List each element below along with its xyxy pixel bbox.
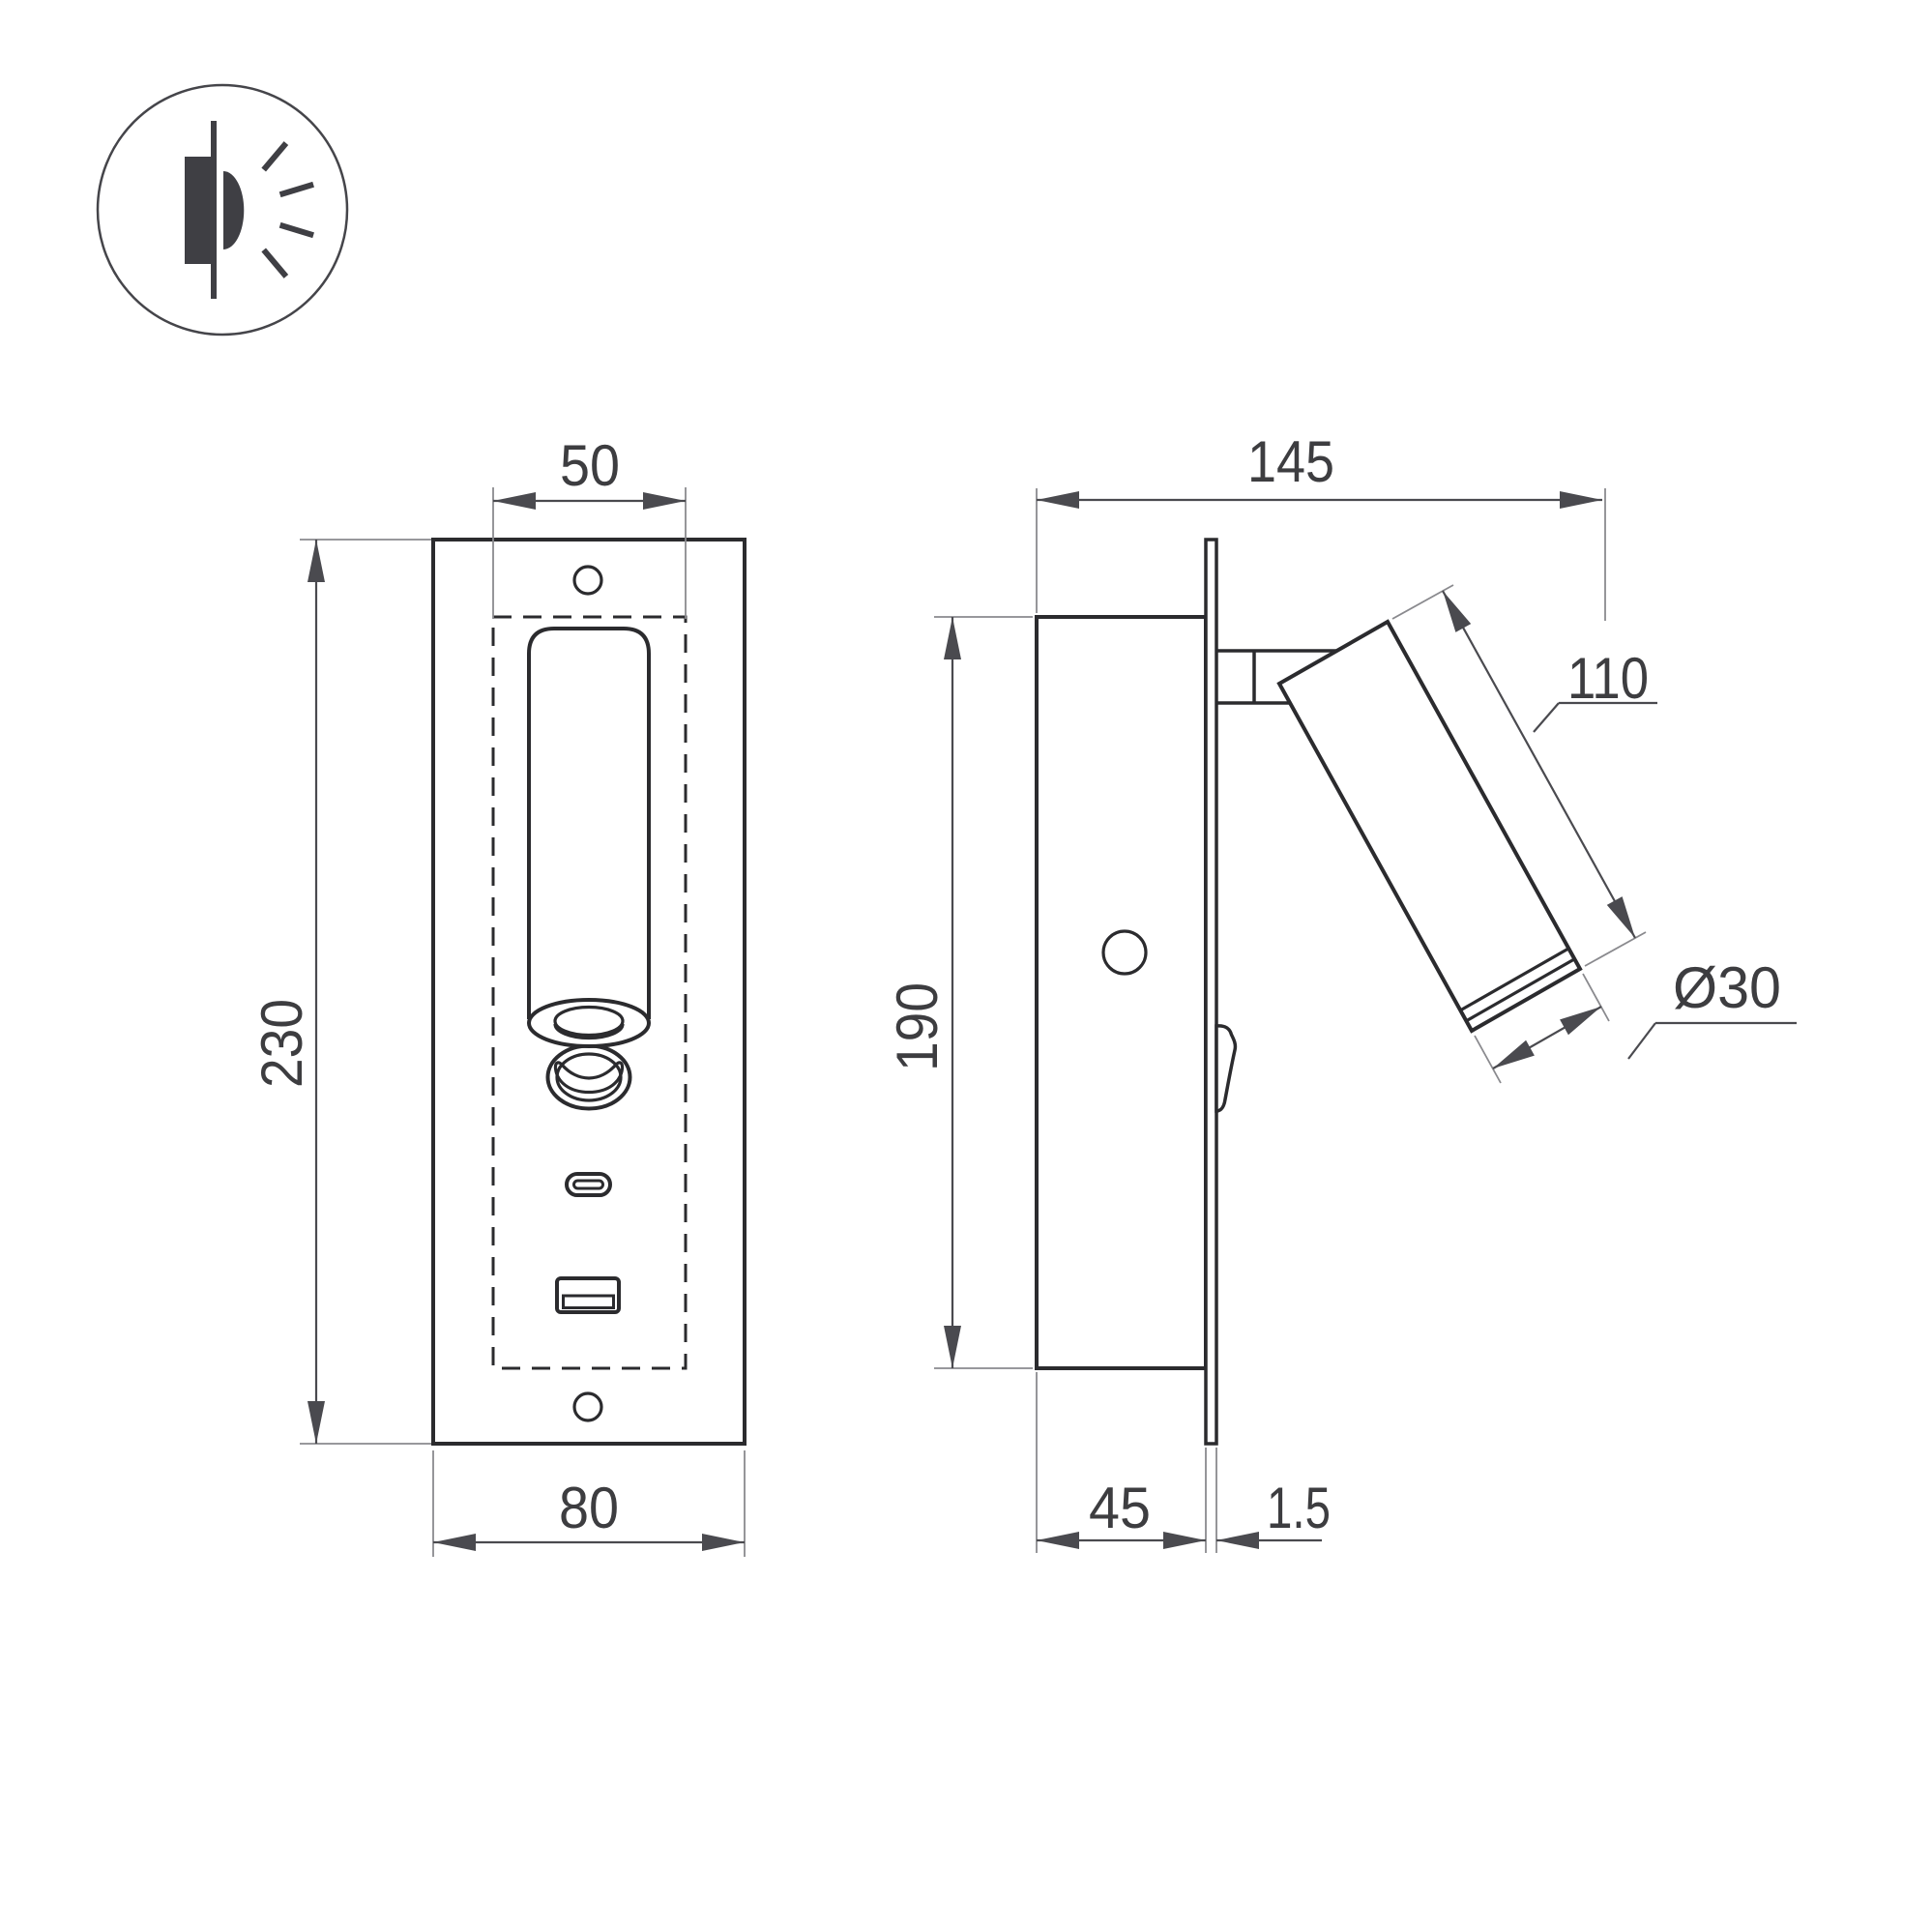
spot-lens (555, 1008, 623, 1036)
dimension-label-230: 230 (249, 999, 314, 1088)
recessed-wall-light-icon (98, 85, 347, 335)
dimension-label-45: 45 (1089, 1476, 1151, 1540)
arrow-up-icon (944, 617, 961, 659)
side-view (1037, 540, 1580, 1444)
arrow-down-left-icon (1493, 1040, 1535, 1068)
dimension-label-110: 110 (1567, 646, 1649, 711)
arrow-up-icon (307, 540, 325, 582)
arrow-left-icon (433, 1534, 476, 1551)
dimension-label-80: 80 (559, 1476, 619, 1540)
arrow-right-icon (1560, 491, 1602, 509)
toggle-switch (1216, 1026, 1235, 1111)
arrow-left-icon (493, 492, 536, 510)
front-view (433, 540, 745, 1444)
dimension-total-depth: 145 (1037, 429, 1605, 621)
leader-connector (1628, 1023, 1655, 1059)
dimension-label-50: 50 (560, 433, 620, 498)
spot-tube-front (529, 629, 649, 1019)
technical-drawing: 50 230 80 (0, 0, 1932, 1932)
logo-circle (98, 85, 347, 335)
arrow-left-icon (1216, 1532, 1259, 1549)
dimension-faceplate-thickness: 1.5 (1216, 1476, 1331, 1549)
dimension-label-145: 145 (1247, 429, 1334, 494)
dimension-housing-height: 190 (885, 617, 1033, 1368)
recessed-housing (1037, 617, 1206, 1368)
faceplate-flange (1206, 540, 1216, 1444)
dimension-label-d30: Ø30 (1673, 955, 1781, 1020)
logo-recessed-body (185, 157, 215, 264)
arrow-up-right-icon (1443, 591, 1471, 632)
drawing-canvas: 50 230 80 (0, 0, 1932, 1932)
arrow-down-icon (944, 1326, 961, 1368)
dimension-label-190: 190 (885, 982, 950, 1071)
logo-lamp-half-disc (223, 171, 244, 249)
arrow-up-right-icon (1560, 1007, 1601, 1035)
dimension-label-1-5: 1.5 (1267, 1476, 1331, 1540)
arrow-down-icon (307, 1401, 325, 1444)
arrow-down-right-icon (1607, 896, 1635, 938)
logo-light-rays (264, 143, 313, 277)
dimension-faceplate-width: 80 (433, 1450, 745, 1557)
arrow-left-icon (1037, 491, 1079, 509)
arrow-right-icon (702, 1534, 745, 1551)
arrow-right-icon (643, 492, 686, 510)
arrow-left-icon (1037, 1532, 1079, 1549)
leader-connector (1534, 703, 1559, 732)
dimension-housing-depth: 45 (1037, 1372, 1216, 1553)
dimension-faceplate-height: 230 (249, 540, 431, 1444)
arrow-right-icon (1163, 1532, 1206, 1549)
